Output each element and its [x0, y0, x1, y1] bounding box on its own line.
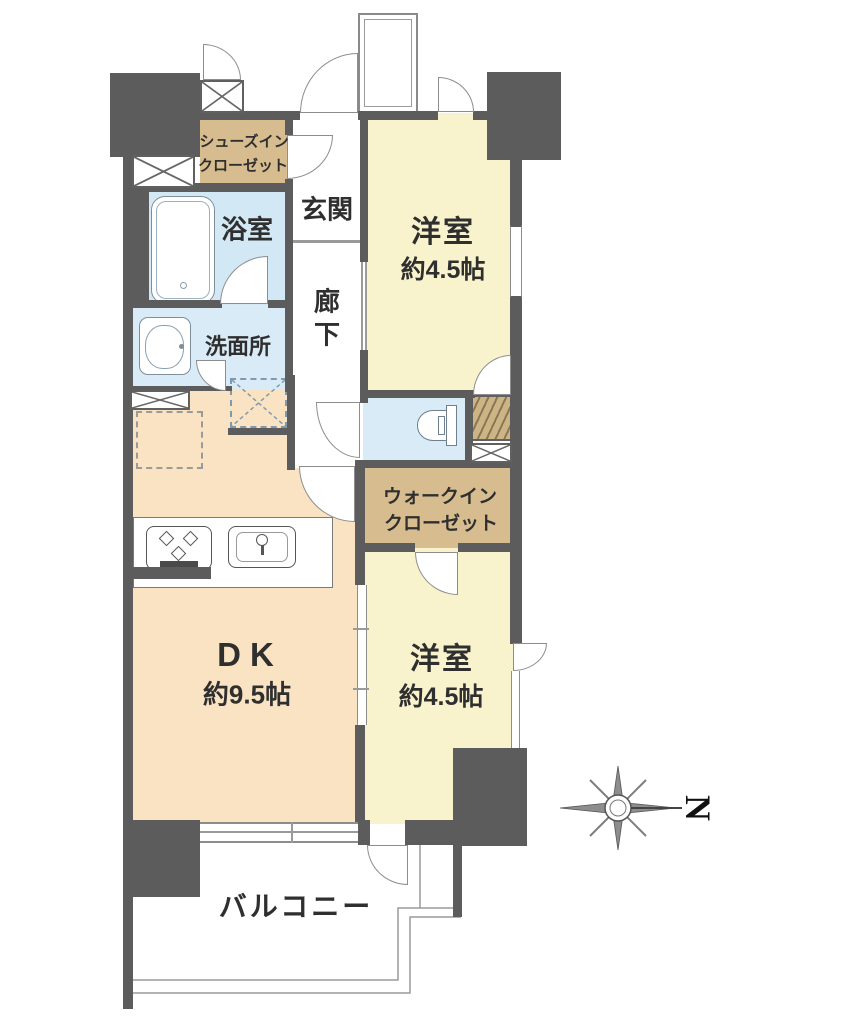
door-arc-exterior-right: [513, 643, 547, 671]
wall-segment: [453, 846, 462, 917]
door-arc-porch-left: [203, 44, 241, 80]
door-arc-shoes-closet: [287, 135, 333, 179]
wall-segment: [360, 350, 368, 392]
label-wic-line1: ウォークイン: [383, 482, 497, 509]
label-bathroom: 浴室: [221, 210, 273, 247]
label-shoes-closet-line1: シューズイン: [199, 131, 288, 152]
porch-alcove: [358, 13, 418, 113]
partition-tick: [353, 628, 369, 630]
washbasin-icon: [139, 317, 191, 375]
meter-box: [470, 395, 512, 441]
wall-pillar-top-right: [487, 72, 561, 160]
wall-segment: [355, 543, 415, 552]
pipe-shaft-icon: [130, 390, 190, 410]
wall-block-bottom-left: [123, 820, 200, 897]
label-entrance: 玄関: [301, 190, 353, 227]
washer-space: [230, 378, 287, 428]
kitchen-sink-icon: [228, 526, 296, 568]
wall-segment: [355, 725, 365, 822]
wall-pillar-top-left: [110, 73, 200, 157]
wall-segment: [287, 375, 295, 430]
bathtub-icon: [151, 196, 215, 304]
door-arc-toilet: [316, 402, 360, 458]
window-right-upper: [510, 225, 522, 298]
pipe-shaft-icon: [200, 80, 244, 113]
wall-segment: [285, 179, 293, 392]
wall-segment: [510, 157, 522, 225]
label-shoes-closet-line2: クローゼット: [198, 155, 288, 176]
wall-segment: [405, 820, 453, 845]
door-arc-entrance: [300, 53, 358, 113]
window-mullion: [200, 831, 358, 833]
wall-segment: [133, 300, 222, 308]
refrigerator-space: [136, 411, 203, 469]
label-western-2: 洋室: [410, 634, 474, 678]
wall-segment: [355, 460, 365, 552]
wall-segment: [360, 390, 475, 398]
compass-icon: N: [550, 740, 730, 880]
label-hallway-char2: 下: [314, 315, 340, 352]
label-balcony: バルコニー: [219, 885, 373, 925]
floor-plan: N シューズイン クローゼット 浴室 玄関 廊 下 洗面所 洋室 約4.5帖 ウ…: [0, 0, 854, 1020]
label-western-1-size: 約4.5帖: [401, 250, 486, 286]
wall-segment: [458, 543, 514, 552]
label-hallway-char1: 廊: [314, 282, 340, 319]
wall-segment: [358, 111, 438, 120]
label-western-1: 洋室: [411, 207, 475, 251]
wall-pillar-bottom-right: [453, 748, 527, 846]
sliding-partition-dk: [357, 585, 367, 725]
window-right-lower: [511, 671, 520, 748]
wall-left-main: [123, 157, 133, 822]
partition-tick: [353, 688, 369, 690]
wall-segment: [133, 190, 149, 308]
pipe-shaft-icon: [470, 443, 512, 463]
stove-icon: [146, 526, 212, 570]
wall-segment: [510, 298, 522, 644]
wall-segment: [360, 111, 368, 262]
wall-segment: [360, 395, 368, 403]
entrance-step-line: [293, 240, 360, 243]
wall-segment: [123, 897, 133, 1009]
wall-segment: [268, 300, 293, 308]
counter-edge-bar: [131, 567, 211, 579]
door-arc-porch-right: [438, 77, 474, 112]
compass-north-label: N: [678, 795, 718, 821]
wall-segment: [355, 552, 365, 585]
wall-segment: [228, 428, 295, 435]
label-western-2-size: 約4.5帖: [399, 677, 484, 713]
wall-segment: [287, 428, 295, 470]
pipe-shaft-icon: [132, 155, 195, 188]
label-dk: DK: [217, 636, 283, 674]
label-wic-line2: クローゼット: [384, 509, 498, 536]
toilet-tank-icon: [446, 405, 457, 446]
window-tick: [291, 822, 293, 843]
wall-segment: [358, 820, 370, 845]
sliding-door-line: [365, 262, 367, 350]
sliding-door-line: [361, 262, 363, 350]
label-dk-size: 約9.5帖: [203, 675, 291, 712]
window-balcony-sliding: [200, 822, 358, 843]
toilet-seat-line: [438, 416, 445, 435]
label-washroom: 洗面所: [205, 329, 271, 361]
